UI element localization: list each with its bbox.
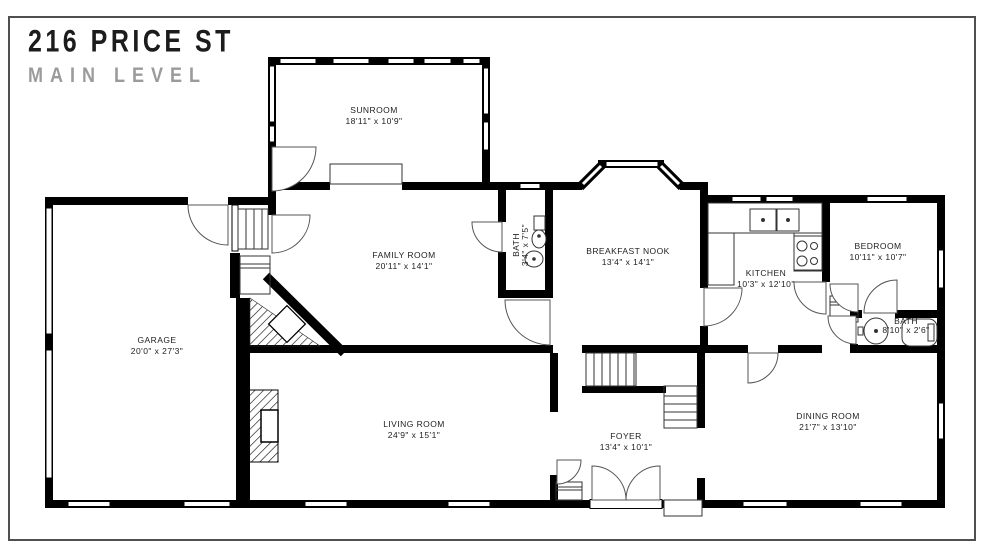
door-arc <box>557 460 581 484</box>
floorplan-drawing <box>0 0 992 558</box>
room-label-living-room: LIVING ROOM 24'9" x 15'1" <box>383 419 445 441</box>
room-dims: 10'11" x 10'7" <box>849 252 906 263</box>
room-label-dining-room: DINING ROOM 21'7" x 13'10" <box>796 411 860 433</box>
room-name: LIVING ROOM <box>383 419 445 430</box>
door-arc <box>505 300 550 345</box>
floorplan-page: 216 PRICE ST MAIN LEVEL <box>0 0 992 558</box>
mudroom-closet <box>240 256 270 294</box>
room-dims: 3'4" x 7'5" <box>521 224 530 266</box>
door-arc <box>592 466 626 500</box>
room-dims: 20'0" x 27'3" <box>131 346 183 357</box>
door-arc <box>828 316 856 344</box>
room-label-kitchen: KITCHEN 10'3" x 12'10" <box>737 268 795 290</box>
room-dims: 13'4" x 10'1" <box>600 442 652 453</box>
door-arc <box>626 466 660 500</box>
room-name: BREAKFAST NOOK <box>586 246 670 257</box>
garage-steps <box>238 209 268 249</box>
room-label-breakfast-nook: BREAKFAST NOOK 13'4" x 14'1" <box>586 246 670 268</box>
room-dims: 8'10" x 2'6" <box>882 326 929 335</box>
room-name: FOYER <box>600 431 652 442</box>
entry-stoop <box>664 500 702 516</box>
room-dims: 21'7" x 13'10" <box>796 422 860 433</box>
door-arc <box>864 280 897 313</box>
room-dims: 18'11" x 10'9" <box>345 116 402 127</box>
room-name: GARAGE <box>131 335 183 346</box>
room-label-sunroom: SUNROOM 18'11" x 10'9" <box>345 105 402 127</box>
door-arc <box>188 205 228 245</box>
door-arc <box>830 284 858 312</box>
foyer-closet <box>556 482 582 500</box>
room-label-bath-hall: BATH 8'10" x 2'6" <box>882 317 929 335</box>
room-dims: 13'4" x 14'1" <box>586 257 670 268</box>
kitchen-sink-icon <box>750 209 799 231</box>
room-name: FAMILY ROOM <box>372 250 435 261</box>
door-arc <box>472 222 502 252</box>
stove-icon <box>794 236 822 270</box>
room-label-bedroom: BEDROOM 10'11" x 10'7" <box>849 241 906 263</box>
door-arc <box>748 353 778 383</box>
door-arc <box>794 282 826 314</box>
room-label-family-room: FAMILY ROOM 20'11" x 14'1" <box>372 250 435 272</box>
room-name: DINING ROOM <box>796 411 860 422</box>
room-label-foyer: FOYER 13'4" x 10'1" <box>600 431 652 453</box>
room-dims: 10'3" x 12'10" <box>737 279 795 290</box>
room-dims: 24'9" x 15'1" <box>383 430 445 441</box>
toilet-icon <box>532 216 546 248</box>
room-name: BEDROOM <box>849 241 906 252</box>
door-arc <box>704 288 742 326</box>
sunroom-step <box>330 164 402 184</box>
room-name: KITCHEN <box>737 268 795 279</box>
room-label-garage: GARAGE 20'0" x 27'3" <box>131 335 183 357</box>
room-name: SUNROOM <box>345 105 402 116</box>
room-dims: 20'11" x 14'1" <box>372 261 435 272</box>
room-label-bath-small: BATH 3'4" x 7'5" <box>512 224 530 266</box>
door-arc <box>272 215 310 253</box>
